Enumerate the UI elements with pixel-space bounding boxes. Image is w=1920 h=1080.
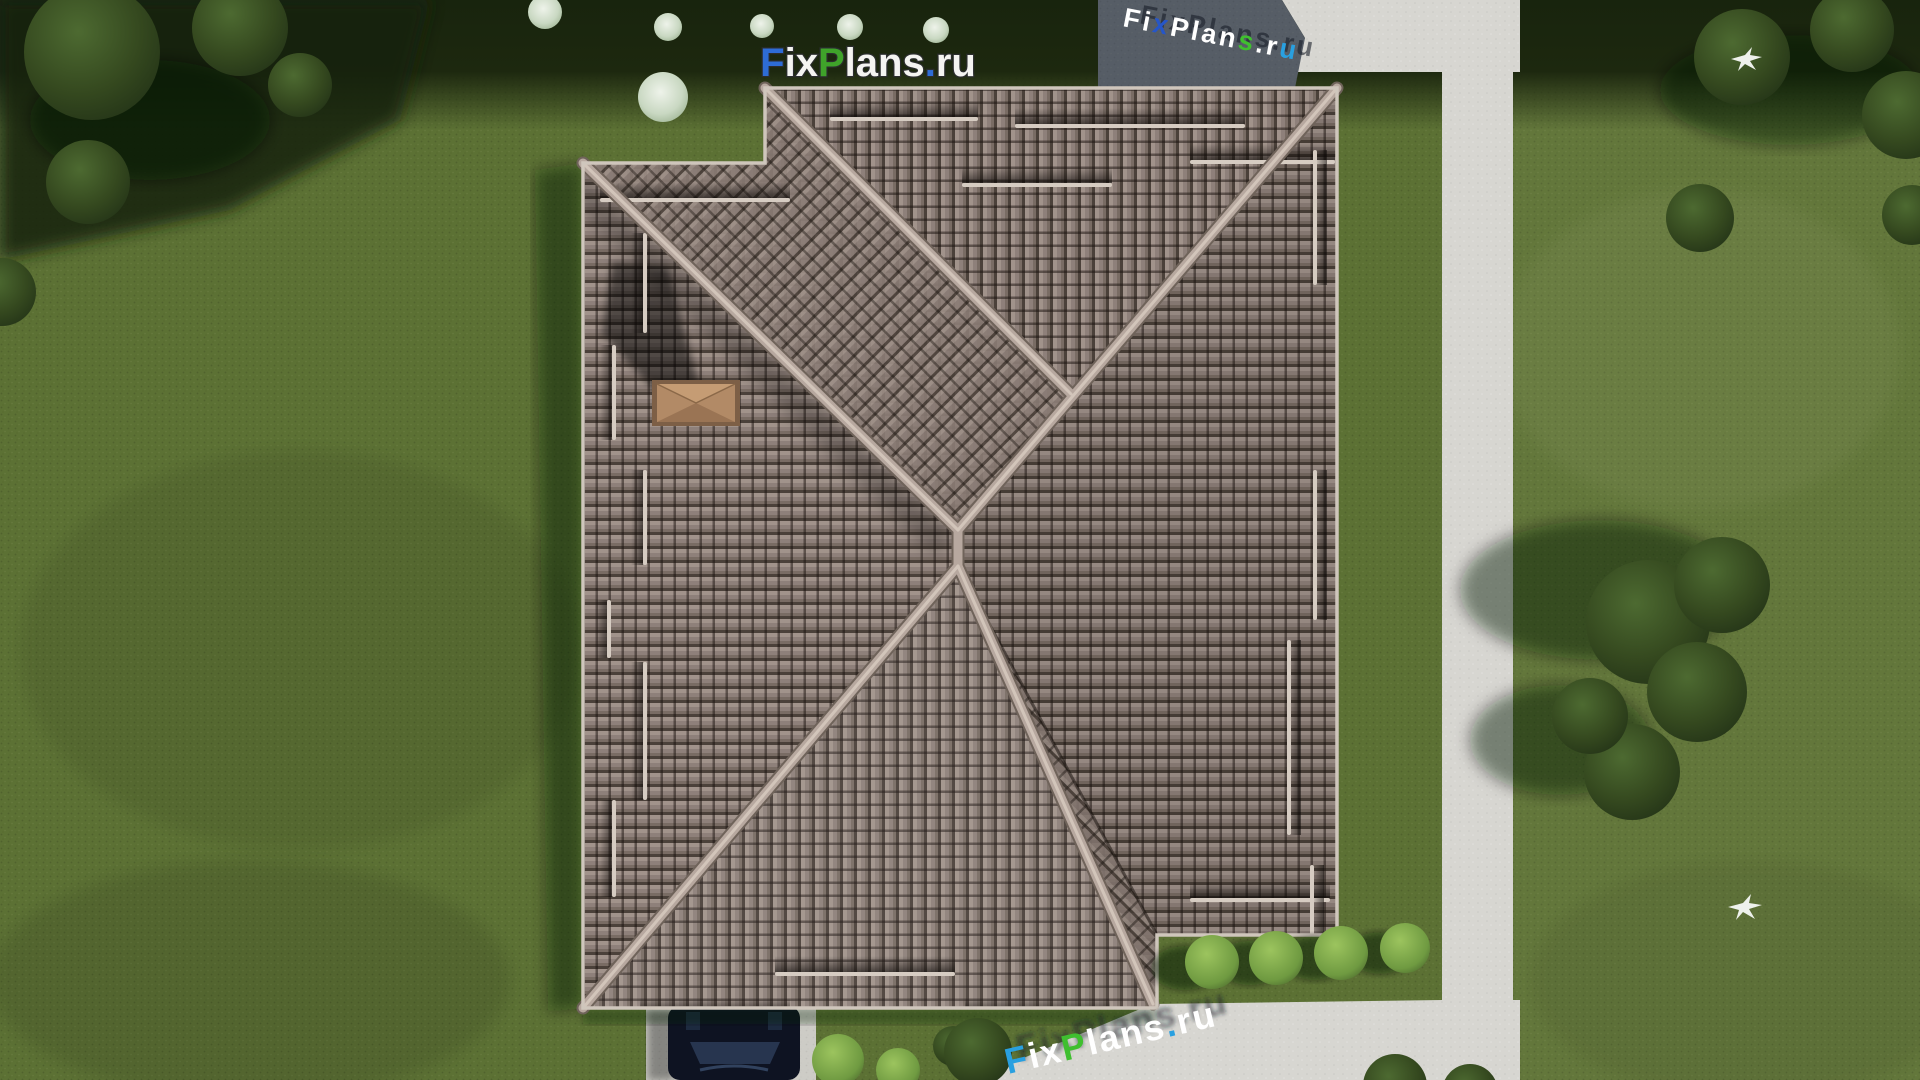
logo-text: FixPlans.ru xyxy=(760,41,976,85)
roof xyxy=(575,88,1337,1016)
watermark-logo: FixPlans.ru xyxy=(760,41,976,85)
car-windshield xyxy=(690,1042,780,1064)
aerial-render: FixPlans.ru FixPlans.ru FixPlans.ru FixP… xyxy=(0,0,1920,1080)
chimney xyxy=(652,380,740,426)
scene-canvas: FixPlans.ru FixPlans.ru FixPlans.ru FixP… xyxy=(0,0,1920,1080)
